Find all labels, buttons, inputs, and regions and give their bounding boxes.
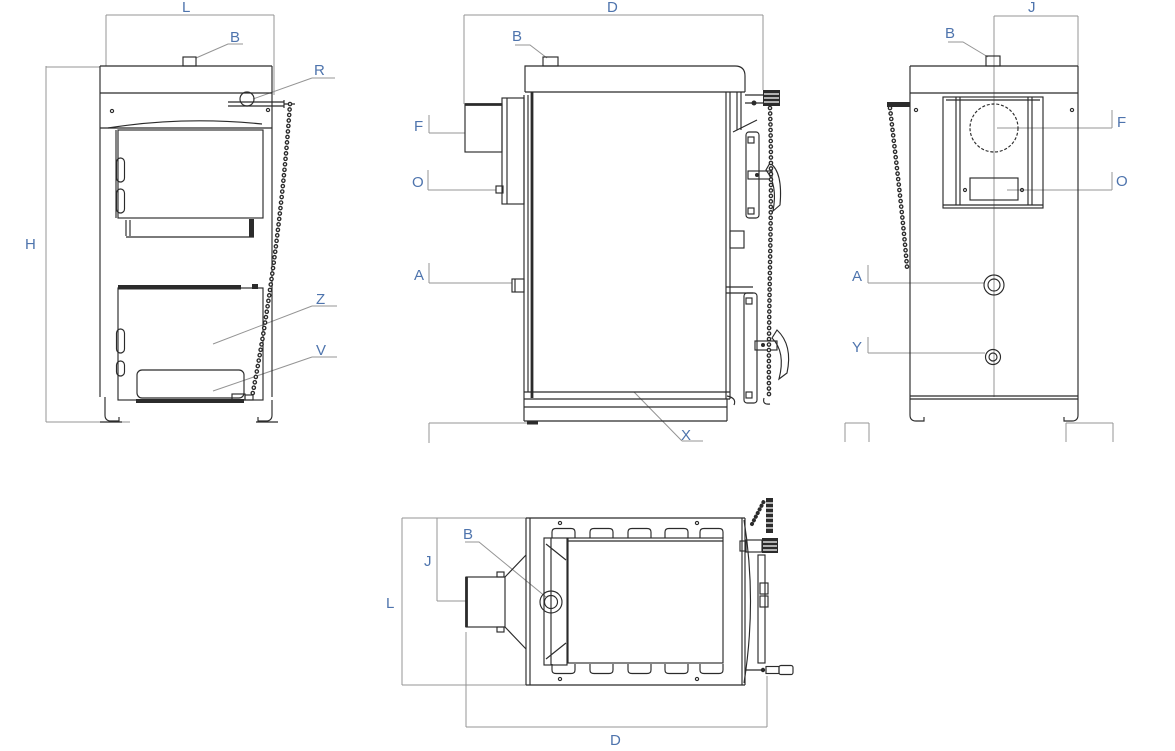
rear-label-y: Y <box>852 340 862 356</box>
rear-label-a: A <box>852 269 862 285</box>
rear-view-linework <box>845 16 1113 442</box>
side-label-x: X <box>681 428 691 444</box>
rear-label-j: J <box>1028 0 1036 16</box>
side-upper-door <box>733 120 781 218</box>
side-label-a: A <box>414 268 424 284</box>
top-rear-plate <box>544 538 567 665</box>
side-lower-door <box>726 287 789 403</box>
rear-label-b: B <box>945 26 955 42</box>
front-ash-pan-v <box>137 370 244 398</box>
front-view-linework <box>46 15 337 422</box>
front-label-h: H <box>25 237 36 253</box>
front-lower-door <box>117 284 264 400</box>
side-label-b: B <box>512 29 522 45</box>
front-label-z: Z <box>316 292 325 308</box>
top-label-j: J <box>424 554 432 570</box>
top-dimension-lines <box>402 518 767 727</box>
side-draft-regulator <box>745 90 780 106</box>
top-draft-regulator <box>740 538 778 553</box>
front-flue-stub-b <box>183 57 196 66</box>
front-label-b: B <box>230 30 240 46</box>
front-label-r: R <box>314 63 325 79</box>
side-lower-door-handle <box>772 330 789 379</box>
rear-feet <box>910 397 1078 421</box>
side-rear-plate <box>502 98 524 204</box>
rear-leader-lines <box>868 42 1112 353</box>
rear-dimension-lines <box>845 16 1113 442</box>
rear-flue-housing <box>943 97 1043 208</box>
front-label-v: V <box>316 343 326 359</box>
side-base-x <box>524 392 730 421</box>
top-vent-slots <box>552 529 723 674</box>
top-view-linework <box>402 498 793 727</box>
side-label-d: D <box>607 0 618 16</box>
top-chain <box>752 501 764 524</box>
front-label-l: L <box>182 0 190 16</box>
top-door-edge <box>758 555 765 663</box>
side-view-linework <box>428 15 789 443</box>
rear-flue-stub-b <box>986 56 1000 66</box>
side-leader-lines <box>515 45 703 441</box>
top-label-b: B <box>463 527 473 543</box>
front-door-chain <box>252 104 290 397</box>
rear-door-chain <box>890 108 907 267</box>
rear-label-f: F <box>1117 115 1126 131</box>
side-label-f: F <box>414 119 423 135</box>
top-label-d: D <box>610 733 621 749</box>
side-fitting-a <box>512 279 524 292</box>
top-door-handle <box>745 666 793 675</box>
side-flue-stub-b <box>543 57 558 66</box>
side-label-o: O <box>412 175 424 191</box>
top-label-l: L <box>386 596 394 612</box>
front-regulator-knob-r <box>240 92 254 106</box>
front-upper-door <box>116 130 263 218</box>
rear-connection-y <box>986 350 1001 365</box>
boiler-technical-drawing: L B R H Z V D B F O A X J B F O A Y J B … <box>0 0 1175 751</box>
top-flue-box <box>466 577 505 627</box>
side-upper-door-handle <box>766 163 781 211</box>
side-flue-outlet-f <box>465 104 502 152</box>
drawing-linework <box>0 0 1175 751</box>
side-dimension-lines <box>428 15 763 443</box>
rear-label-o: O <box>1116 174 1128 190</box>
